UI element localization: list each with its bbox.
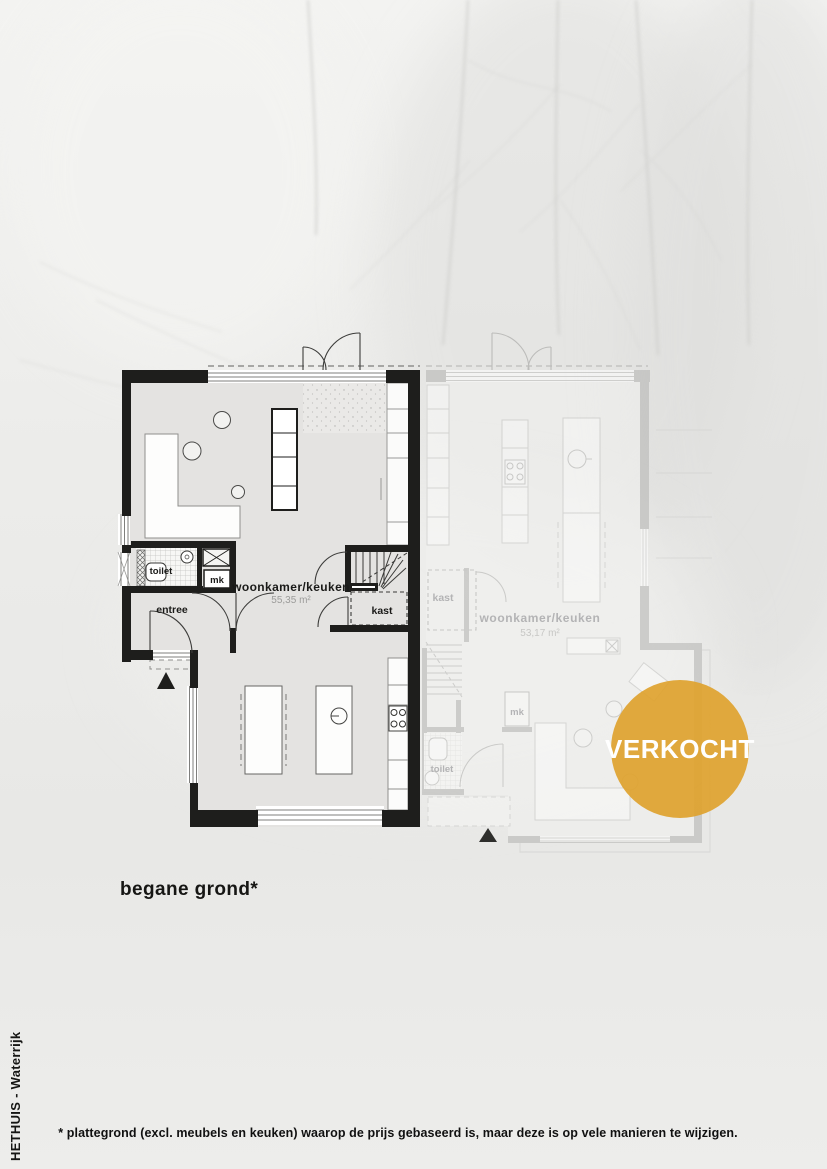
brochure-page: woonkamer/keuken 53,17 m² kast mk toilet bbox=[0, 0, 827, 1169]
right-unit-wall-cabinets bbox=[427, 385, 449, 545]
left-unit-tall-cabinet bbox=[272, 409, 297, 510]
left-unit-island-1 bbox=[241, 686, 286, 774]
sold-badge-label: VERKOCHT bbox=[605, 734, 755, 764]
left-unit-terrace-finish bbox=[303, 383, 387, 433]
left-unit-kast-label: kast bbox=[371, 605, 393, 617]
left-unit-table-round bbox=[232, 486, 245, 499]
left-unit-island-2 bbox=[316, 686, 352, 774]
right-unit-island bbox=[558, 418, 605, 602]
left-unit-table-round bbox=[214, 412, 231, 429]
footnote: * plattegrond (excl. meubels en keuken) … bbox=[30, 1126, 766, 1140]
right-unit-living-area: 53,17 m² bbox=[520, 628, 560, 639]
right-unit-kast-label: kast bbox=[432, 592, 454, 604]
right-unit-kitchen-counter bbox=[502, 420, 528, 543]
left-unit-mk-label: mk bbox=[210, 575, 224, 586]
right-unit-table-round bbox=[574, 729, 592, 747]
left-unit-kitchen-counter bbox=[388, 658, 408, 810]
toilet-sink bbox=[181, 551, 193, 563]
right-unit-mk-label: mk bbox=[510, 707, 524, 718]
left-unit-living-area: 55,35 m² bbox=[271, 595, 311, 606]
left-unit-table-round bbox=[183, 442, 201, 460]
floor-title: begane grond* bbox=[120, 879, 258, 901]
right-unit-toilet-label: toilet bbox=[431, 764, 455, 775]
left-unit-entree-label: entree bbox=[156, 604, 188, 616]
right-unit-porch bbox=[428, 797, 510, 826]
right-unit-sideboard bbox=[567, 638, 620, 654]
right-unit-toilet-room bbox=[424, 733, 462, 789]
left-unit-living-label: woonkamer/keuken bbox=[231, 580, 350, 594]
right-unit-entrance-arrow-icon bbox=[479, 828, 497, 842]
brand-vertical-label: HETHUIS - Waterrijk bbox=[8, 1032, 23, 1161]
left-unit-toilet-label: toilet bbox=[150, 566, 174, 577]
floorplan-canvas: woonkamer/keuken 53,17 m² kast mk toilet bbox=[0, 0, 827, 1169]
right-unit-table-round bbox=[606, 701, 622, 717]
right-unit-living-label: woonkamer/keuken bbox=[479, 611, 601, 625]
left-unit-floorplan: woonkamer/keuken 55,35 m² toilet mk entr… bbox=[118, 333, 420, 827]
